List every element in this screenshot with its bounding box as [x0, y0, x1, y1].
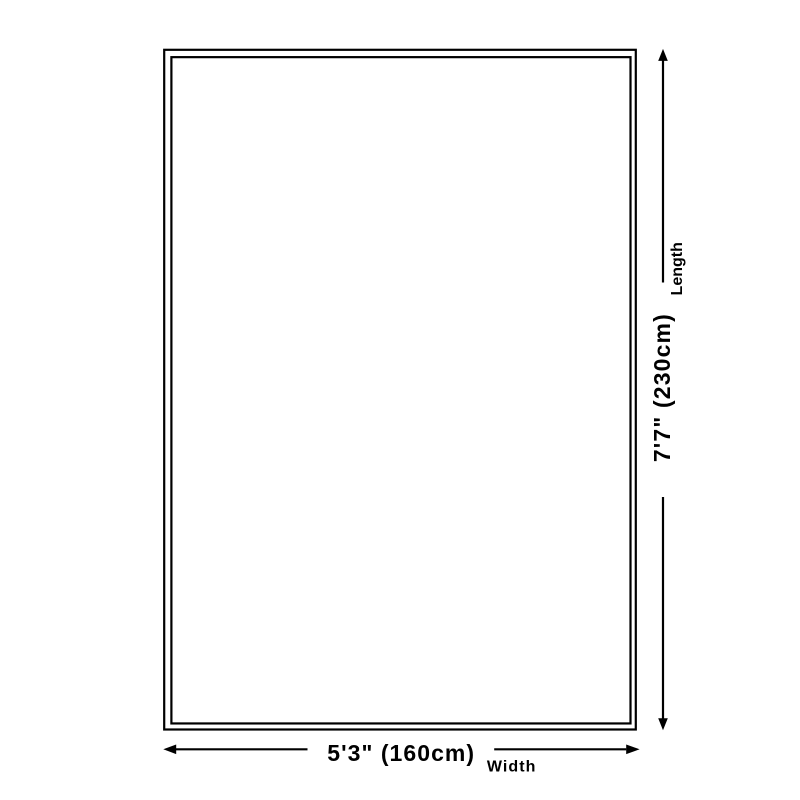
svg-text:7'7" (230cm): 7'7" (230cm) [649, 313, 675, 462]
svg-text:Length: Length [669, 242, 686, 295]
svg-text:5'3" (160cm): 5'3" (160cm) [327, 740, 475, 766]
svg-text:Width: Width [487, 759, 537, 776]
